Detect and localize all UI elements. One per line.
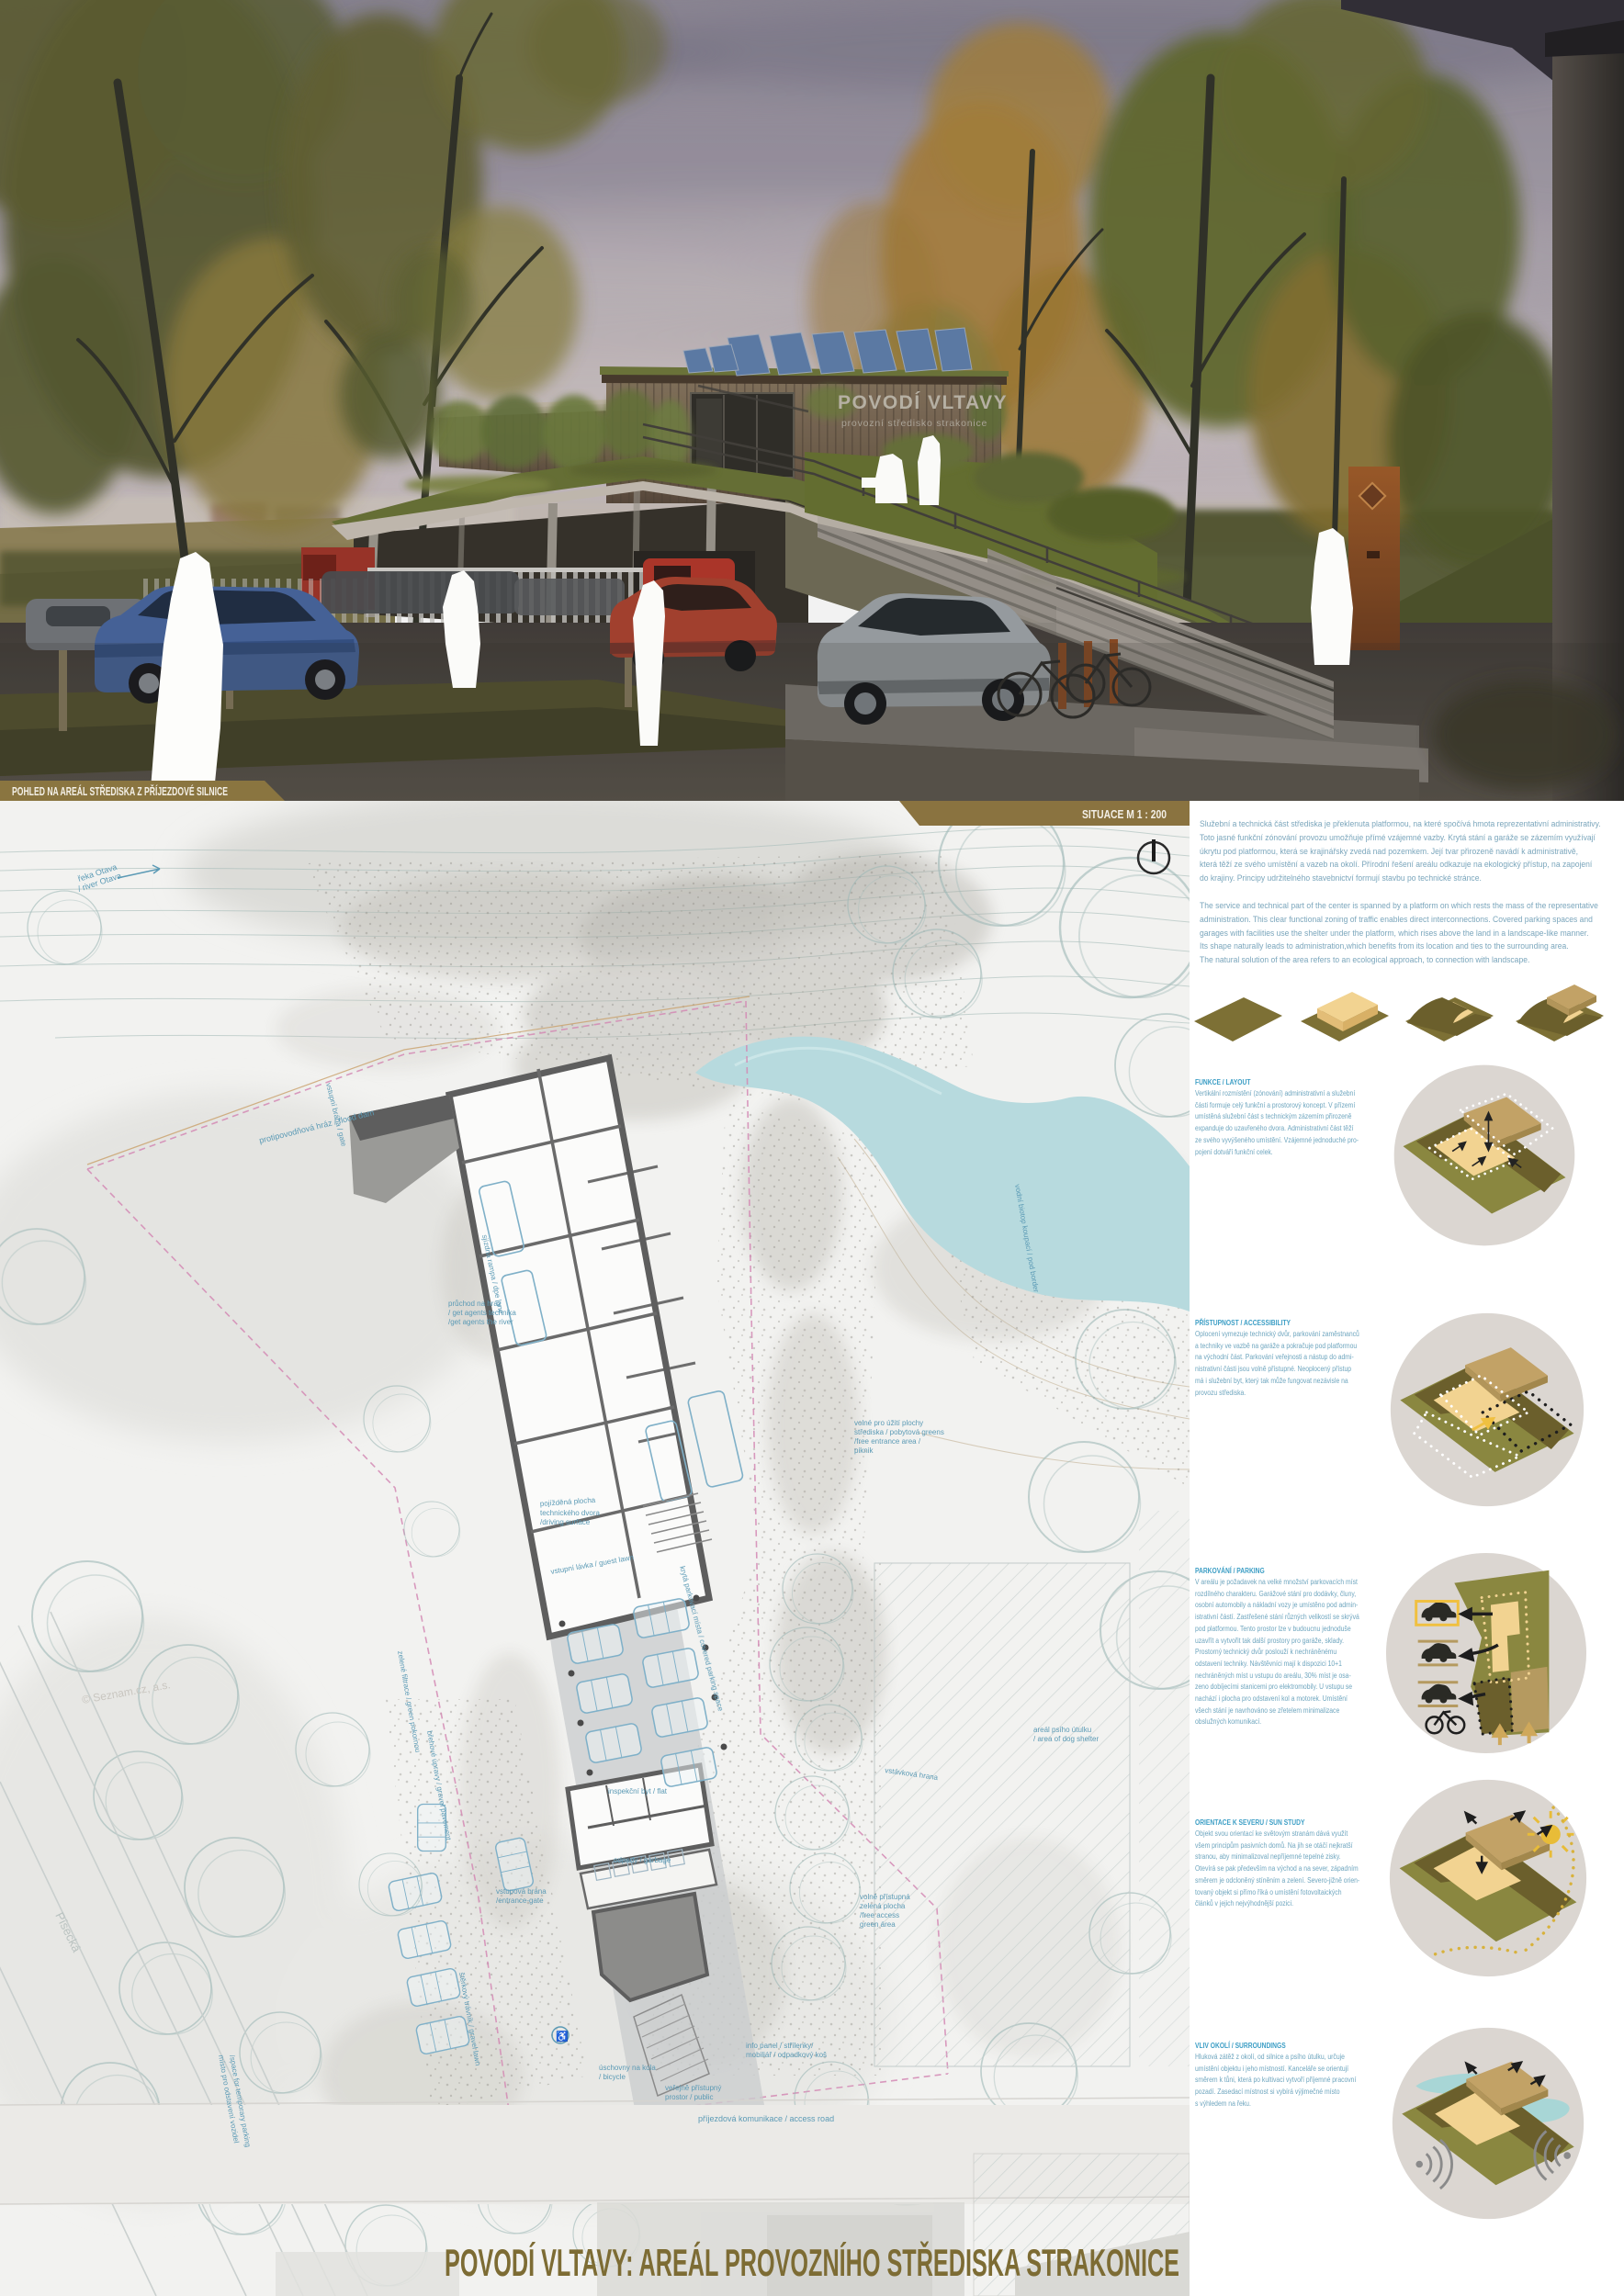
- svg-text:odpady / garbage: odpady / garbage: [614, 1856, 671, 1864]
- svg-text:green área: green área: [860, 1920, 896, 1929]
- svg-text:piknik: piknik: [854, 1446, 874, 1455]
- svg-text:zelená plocha: zelená plocha: [860, 1902, 906, 1910]
- svg-text:mobiliář / odpadkový koš: mobiliář / odpadkový koš: [746, 2051, 827, 2059]
- svg-text:POVODÍ VLTAVY: AREÁL PROVOZNÍH: POVODÍ VLTAVY: AREÁL PROVOZNÍHO STŘEDISK…: [445, 2240, 1179, 2284]
- svg-text:střediska / pobytová greens: střediska / pobytová greens: [854, 1428, 944, 1436]
- svg-text:info panel / střílenky/: info panel / střílenky/: [746, 2042, 814, 2050]
- svg-text:/entrance-gate: /entrance-gate: [496, 1896, 544, 1905]
- svg-text:/ area of dog shelter: / area of dog shelter: [1033, 1735, 1099, 1743]
- svg-text:vstupová brána: vstupová brána: [496, 1887, 547, 1896]
- svg-text:/ get agents technika: / get agents technika: [448, 1309, 516, 1317]
- svg-text:areál psího útulku: areál psího útulku: [1033, 1726, 1091, 1734]
- svg-text:/free entrance area /: /free entrance area /: [854, 1437, 921, 1446]
- svg-text:příjezdová komunikace / access: příjezdová komunikace / access road: [698, 2114, 834, 2123]
- svg-text:úschovny na kola: úschovny na kola: [599, 2064, 656, 2072]
- svg-text:POHLED NA AREÁL STŘEDISKA Z PŘ: POHLED NA AREÁL STŘEDISKA Z PŘÍJEZDOVÉ S…: [12, 784, 228, 798]
- svg-text:SITUACE M 1 : 200: SITUACE M 1 : 200: [1082, 807, 1167, 821]
- svg-text:veřejně přístupný: veřejně přístupný: [665, 2084, 721, 2092]
- svg-text:/free access: /free access: [860, 1911, 899, 1919]
- svg-text:volné pro úžití plochy: volné pro úžití plochy: [854, 1419, 923, 1427]
- svg-text:prostor / public: prostor / public: [665, 2093, 713, 2101]
- svg-text:průchod na hráz: průchod na hráz: [448, 1300, 502, 1308]
- svg-text:/get agents the river: /get agents the river: [448, 1318, 513, 1326]
- svg-text:♿: ♿: [556, 2031, 569, 2043]
- svg-text:inspekční byt / flat: inspekční byt / flat: [608, 1787, 668, 1795]
- svg-text:/driving surface: /driving surface: [540, 1518, 591, 1526]
- svg-text:technického dvora: technického dvora: [540, 1509, 600, 1517]
- svg-text:volně přístupná: volně přístupná: [860, 1893, 910, 1901]
- svg-text:/ bicycle: / bicycle: [599, 2073, 626, 2081]
